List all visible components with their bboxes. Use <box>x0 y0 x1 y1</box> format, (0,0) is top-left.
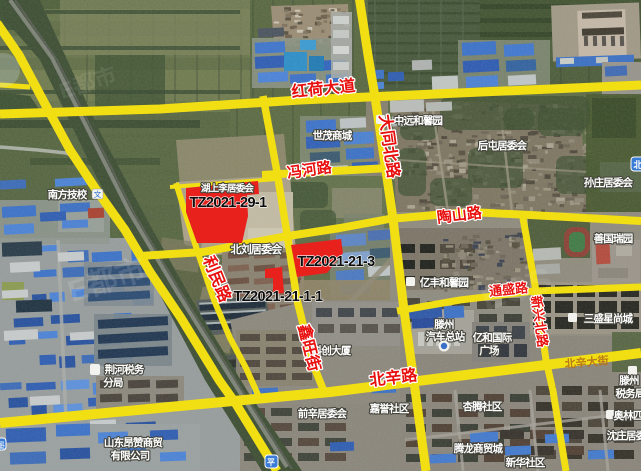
svg-text:后屯居委会: 后屯居委会 <box>478 139 528 152</box>
svg-text:新华社区: 新华社区 <box>506 456 546 469</box>
svg-text:滕州: 滕州 <box>619 374 639 387</box>
svg-text:税务局: 税务局 <box>615 387 641 400</box>
svg-text:文: 文 <box>94 189 102 199</box>
svg-text:北刘居委会: 北刘居委会 <box>231 242 284 256</box>
svg-text:TZ2021-21-3: TZ2021-21-3 <box>297 254 375 270</box>
svg-text:北: 北 <box>633 159 641 170</box>
svg-text:三盛星尚城: 三盛星尚城 <box>584 312 634 325</box>
svg-text:TZ2021-29-1: TZ2021-29-1 <box>189 195 267 211</box>
svg-text:奥林匹: 奥林匹 <box>613 409 641 422</box>
svg-text:亿丰和馨园: 亿丰和馨园 <box>420 276 469 289</box>
svg-text:前辛居委会: 前辛居委会 <box>298 407 348 420</box>
svg-text:TZ2021-21-1-1: TZ2021-21-1-1 <box>234 289 323 305</box>
svg-text:分局: 分局 <box>103 376 123 389</box>
svg-text:亿和国际: 亿和国际 <box>473 331 513 344</box>
svg-text:有限公司: 有限公司 <box>111 449 150 462</box>
svg-text:善国瑞园: 善国瑞园 <box>594 232 633 245</box>
svg-text:湖上李居委会: 湖上李居委会 <box>201 183 255 195</box>
svg-text:滕州: 滕州 <box>434 318 454 331</box>
svg-text:杏腾社区: 杏腾社区 <box>462 400 503 413</box>
svg-text:南方技校: 南方技校 <box>48 188 88 201</box>
svg-text:广场: 广场 <box>479 344 500 357</box>
svg-text:嘉誉社区: 嘉誉社区 <box>369 402 410 415</box>
svg-text:墨: 墨 <box>0 441 5 450</box>
svg-text:山东昂赞商贸: 山东昂赞商贸 <box>104 436 163 449</box>
svg-text:沈庄居委: 沈庄居委 <box>607 429 641 442</box>
svg-text:平: 平 <box>267 458 275 467</box>
svg-text:腾龙商贸城: 腾龙商贸城 <box>453 442 504 455</box>
svg-text:中远和馨园: 中远和馨园 <box>394 114 443 127</box>
svg-text:孙庄居委会: 孙庄居委会 <box>584 176 634 189</box>
svg-text:世茂商城: 世茂商城 <box>313 129 353 142</box>
svg-text:荆河税务: 荆河税务 <box>105 363 145 376</box>
